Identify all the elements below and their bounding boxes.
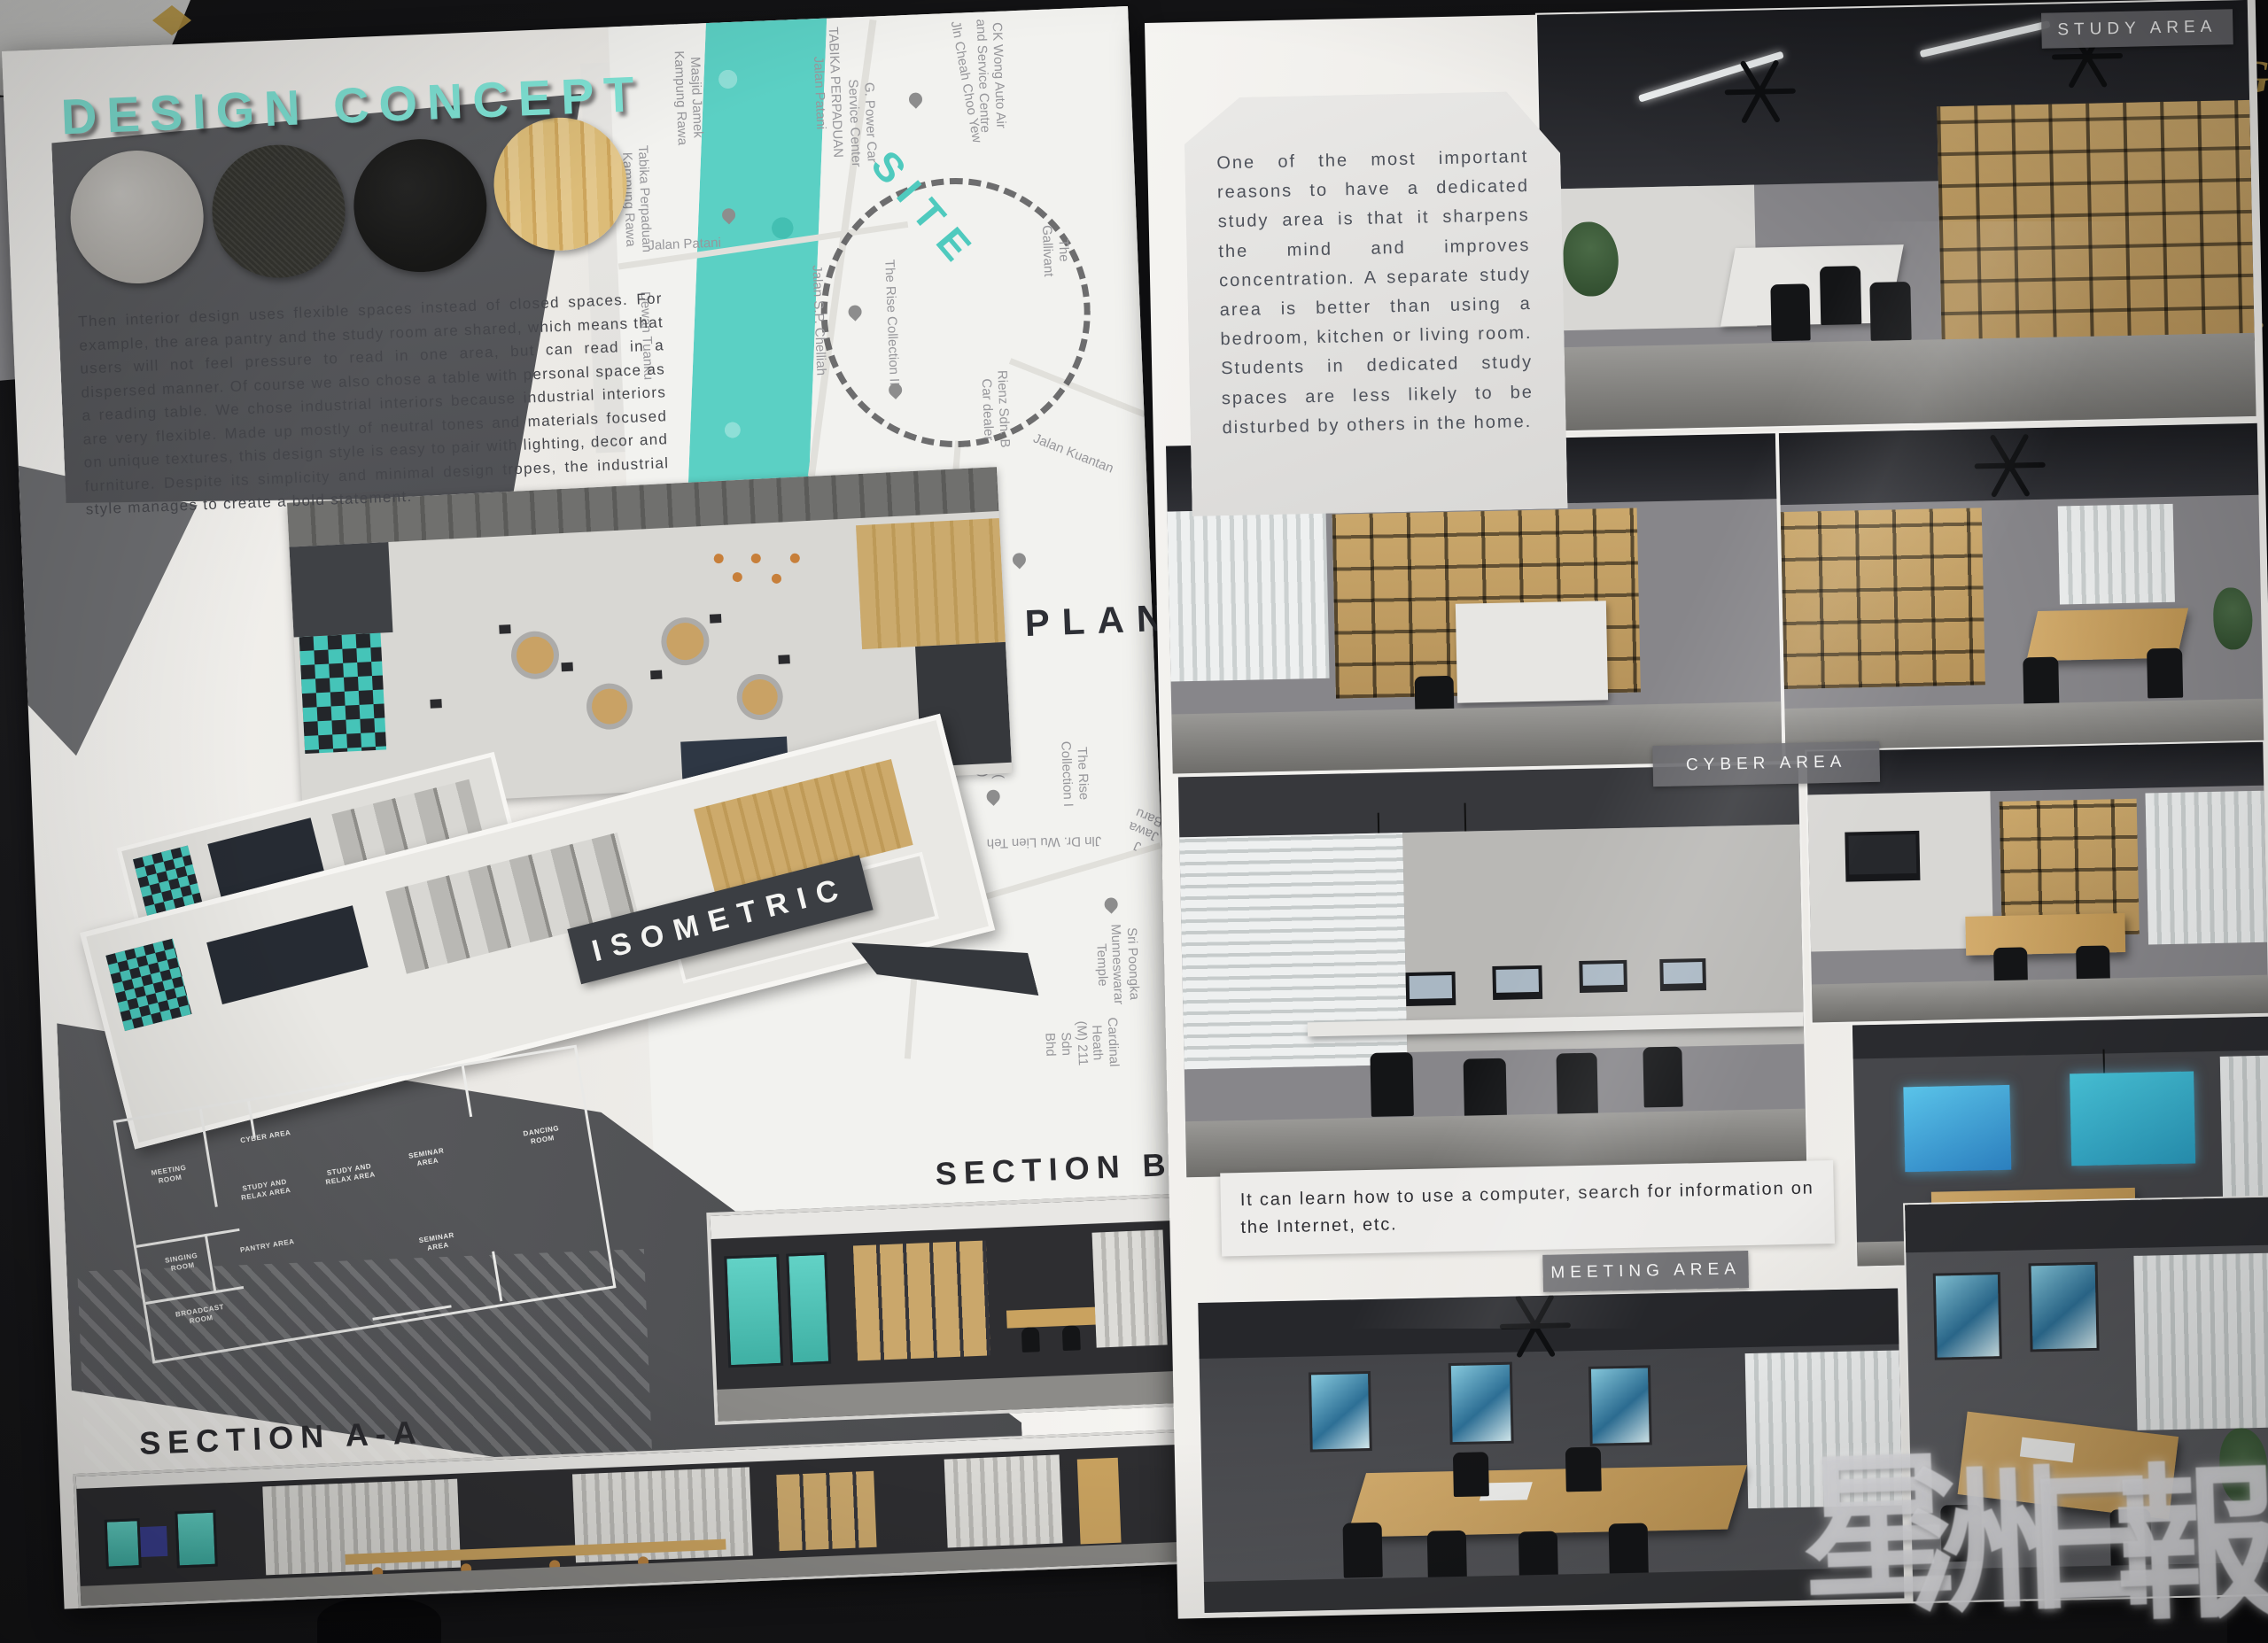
section-bb-render xyxy=(706,1194,1184,1425)
plan-orange-chair xyxy=(733,572,743,583)
render-chair xyxy=(1565,1446,1602,1492)
section-glass-panel xyxy=(105,1518,142,1569)
render-study-area-main xyxy=(1537,0,2256,431)
monitor-icon xyxy=(1492,965,1542,1000)
section-glass-panel xyxy=(724,1254,783,1368)
floorplan-room-label: STUDY AND RELAX AREA xyxy=(308,1159,392,1190)
render-chair xyxy=(1643,1047,1682,1108)
render-window xyxy=(2058,504,2175,605)
render-cyber-office xyxy=(1806,742,2268,1023)
left-presentation-board: DESIGN CONCEPT Then interior design uses… xyxy=(2,6,1191,1609)
floorplan-room-label: SEMINAR AREA xyxy=(401,1228,474,1258)
render-chair xyxy=(1770,284,1810,342)
meeting-table xyxy=(1347,1465,1747,1537)
section-glass-panel xyxy=(786,1252,831,1366)
map-street-label: Jalan Kuantan xyxy=(1031,430,1116,477)
render-window xyxy=(2134,1252,2268,1430)
monitor-icon xyxy=(1659,958,1706,991)
meeting-area-chip: MEETING AREA xyxy=(1542,1251,1749,1292)
plan-chair xyxy=(778,655,789,664)
map-pin-icon xyxy=(984,787,1003,806)
cyber-area-caption: It can learn how to use a computer, sear… xyxy=(1220,1160,1835,1256)
plan-orange-chair xyxy=(790,553,801,563)
plan-chair xyxy=(710,614,721,624)
section-shelving xyxy=(853,1241,990,1361)
render-partition-desk xyxy=(1456,601,1608,703)
plan-label: PLAN xyxy=(1024,596,1177,645)
section-glass-panel xyxy=(175,1510,218,1569)
map-pin-icon xyxy=(1102,895,1121,913)
plan-round-table xyxy=(742,678,779,716)
section-shelving xyxy=(776,1471,876,1551)
render-chair xyxy=(1343,1523,1383,1578)
map-place-label: TABIKA PERPADUAN Jalan Patani xyxy=(809,27,845,159)
floorplan-wall xyxy=(492,1252,502,1302)
map-place-label: Rienz Sdn. B Car dealer xyxy=(978,370,1013,449)
render-shelving xyxy=(1781,508,1985,689)
cyber-area-chip: CYBER AREA xyxy=(1652,741,1880,787)
section-chair xyxy=(1062,1325,1081,1351)
floorplan-wall xyxy=(247,1101,256,1138)
tv-screen-icon xyxy=(1845,831,1920,882)
floorplan-room-label: PANTRY AREA xyxy=(227,1236,308,1258)
render-window xyxy=(1168,508,1330,682)
plan-chair xyxy=(499,624,510,634)
render-glass-wall xyxy=(2146,791,2267,945)
floorplan-room-label: SINGING ROOM xyxy=(149,1249,214,1277)
map-place-label: Masjid Jamek Kampung Rawa xyxy=(671,50,706,145)
floorplan-room-label: DANCING ROOM xyxy=(509,1122,575,1151)
floorplan-room-label: STUDY AND RELAX AREA xyxy=(223,1174,307,1205)
render-ceiling xyxy=(1905,1197,2268,1252)
render-chair xyxy=(2023,657,2059,708)
right-presentation-board: One of the most important reasons to hav… xyxy=(1145,0,2268,1619)
map-pin-icon xyxy=(906,90,925,109)
wall-painting xyxy=(1936,1275,2000,1357)
plan-round-table xyxy=(516,636,555,675)
foreground-silhouette xyxy=(317,1596,441,1643)
render-study-lounge xyxy=(1779,423,2264,761)
section-aa-label: SECTION A-A xyxy=(138,1414,423,1462)
map-street-label: Jalan Patani xyxy=(648,236,721,254)
section-curtain xyxy=(944,1454,1063,1547)
map-place-label: Cardinal Heath (M) 211 Sdn Bhd xyxy=(1041,1017,1122,1069)
design-concept-paragraph: Then interior design uses flexible space… xyxy=(78,287,671,522)
render-floor xyxy=(1204,1567,1905,1613)
render-plant xyxy=(2213,587,2253,650)
render-floor xyxy=(1812,975,2268,1023)
study-area-chip: STUDY AREA xyxy=(2041,9,2233,49)
floorplan-wall xyxy=(199,1109,218,1207)
plan-orange-chair xyxy=(751,554,762,564)
plan-chair xyxy=(650,670,662,680)
wall-painting xyxy=(2031,1265,2097,1349)
blue-screen xyxy=(2070,1071,2195,1166)
render-chair xyxy=(1453,1452,1489,1497)
section-blue-panel xyxy=(140,1526,167,1557)
render-chair xyxy=(1609,1523,1649,1578)
plan-chair xyxy=(430,699,441,709)
monitor-icon xyxy=(1579,960,1627,993)
plan-orange-chair xyxy=(772,574,782,585)
plan-chair xyxy=(561,663,572,672)
study-area-text-panel: One of the most important reasons to hav… xyxy=(1184,90,1568,516)
render-window xyxy=(2219,1055,2268,1200)
plan-round-table xyxy=(591,688,628,725)
render-shelving xyxy=(1937,100,2255,348)
map-place-label: Sri Poongka Munneswarar Temple xyxy=(1092,923,1143,1005)
render-chair xyxy=(1820,267,1861,326)
plan-orange-chair xyxy=(713,554,724,564)
render-cyber-area-main xyxy=(1178,764,1806,1178)
render-floor xyxy=(1544,333,2256,431)
floorplan-wall xyxy=(136,1228,240,1248)
floorplan-room-label: BROADCAST ROOM xyxy=(159,1300,241,1331)
blue-screen xyxy=(1904,1085,2012,1172)
plan-teal-mosaic xyxy=(299,633,387,754)
plan-round-table xyxy=(665,622,704,661)
wall-painting xyxy=(1311,1374,1370,1449)
section-curtain xyxy=(1092,1229,1168,1347)
map-place-label: The Rise Collection I xyxy=(1058,739,1091,808)
floorplan-room-label: MEETING ROOM xyxy=(136,1161,202,1190)
render-chair xyxy=(1370,1052,1413,1117)
monitor-icon xyxy=(1406,972,1456,1006)
iso-navy-partition xyxy=(206,905,369,1004)
study-area-paragraph: One of the most important reasons to hav… xyxy=(1216,143,1534,443)
render-chair xyxy=(1464,1058,1507,1123)
render-ceiling xyxy=(1852,1017,2268,1059)
floorplan-room-label: SEMINAR AREA xyxy=(391,1143,463,1173)
map-place-label: The Gallivant xyxy=(1038,217,1072,284)
plan-dark-room xyxy=(289,542,392,638)
plan-wood-room xyxy=(856,518,1006,649)
iso-teal-room xyxy=(105,939,191,1032)
section-floor xyxy=(717,1371,1180,1422)
render-chair xyxy=(1869,282,1911,341)
wall-painting xyxy=(1591,1368,1650,1443)
watermark-character: 報 xyxy=(2109,1407,2268,1643)
floorplan-wall xyxy=(462,1066,472,1117)
section-wood-door xyxy=(1077,1458,1122,1545)
section-chair xyxy=(1021,1327,1040,1352)
photo-of-design-boards: G S ire on DESIGN CONCEPT Then interior … xyxy=(0,0,2268,1643)
floorplan-room-label: CYBER AREA xyxy=(225,1126,307,1148)
render-chair xyxy=(1556,1052,1597,1115)
map-pin-icon xyxy=(1010,550,1029,569)
map-street-label: Jln Dr. Wu Lien Teh xyxy=(987,833,1102,851)
render-chair xyxy=(2147,647,2183,698)
wall-painting xyxy=(1451,1365,1511,1442)
map-place-label: G. Power Car Service Center xyxy=(845,78,880,167)
